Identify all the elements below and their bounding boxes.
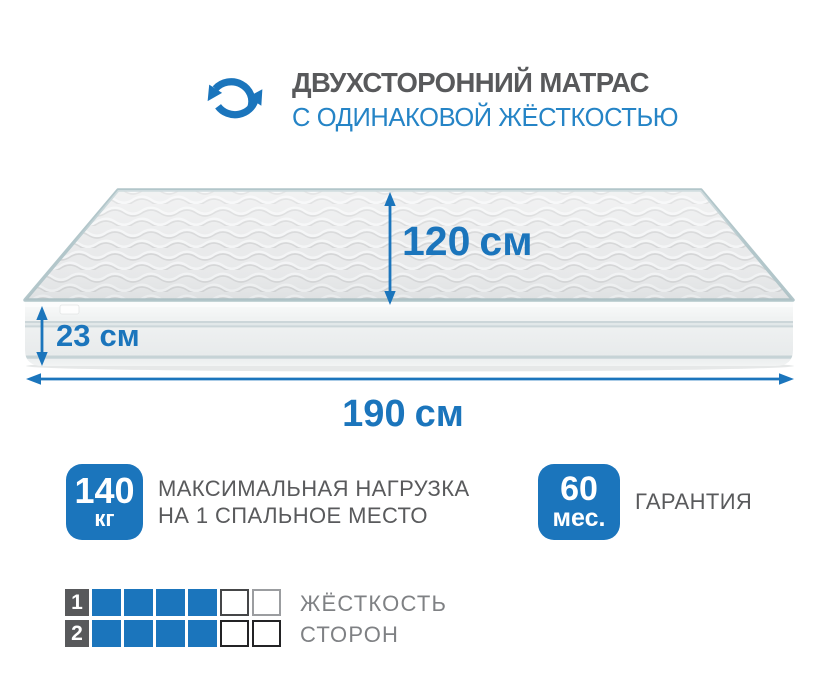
- firmness-cell-empty: [220, 620, 249, 647]
- warranty-unit: мес.: [553, 506, 606, 531]
- dimension-depth-unit: см: [479, 218, 532, 264]
- length-arrow: [26, 373, 794, 385]
- firmness-cell-filled: [92, 589, 121, 616]
- dimension-length-unit: см: [415, 393, 464, 435]
- warranty-feature: 60 мес. ГАРАНТИЯ: [538, 464, 752, 540]
- mattress-bottom-piping: [25, 356, 793, 359]
- firmness-cell-filled: [188, 620, 217, 647]
- firmness-side-number: 1: [65, 589, 89, 616]
- max-load-feature: 140 кг МАКСИМАЛЬНАЯ НАГРУЗКА НА 1 СПАЛЬН…: [66, 464, 470, 540]
- firmness-label: ЖЁСТКОСТЬ СТОРОН: [300, 588, 447, 650]
- firmness-row-side1: 1: [65, 589, 281, 616]
- warranty-badge: 60 мес.: [538, 464, 620, 540]
- firmness-cells-side2: [89, 620, 281, 647]
- max-load-unit: кг: [94, 508, 114, 530]
- max-load-value: 140: [74, 474, 134, 508]
- dimension-height-unit: см: [99, 318, 139, 353]
- firmness-cells-side1: [89, 589, 281, 616]
- dimension-length: 190см: [283, 395, 523, 433]
- firmness-cell-filled: [124, 620, 153, 647]
- firmness-cell-filled: [156, 589, 185, 616]
- firmness-cell-empty: [252, 589, 281, 616]
- dimension-depth-value: 120: [402, 218, 470, 264]
- page-title: ДВУХСТОРОННИЙ МАТРАС: [292, 69, 678, 97]
- warranty-label: ГАРАНТИЯ: [635, 488, 752, 516]
- dimension-height-value: 23: [56, 318, 90, 353]
- dimension-depth: 120см: [402, 221, 533, 262]
- firmness-cell-filled: [92, 620, 121, 647]
- firmness-cell-filled: [124, 589, 153, 616]
- dimension-height: 23см: [56, 320, 140, 351]
- rotate-sync-icon: [204, 64, 266, 128]
- firmness-row-side2: 2: [65, 620, 281, 647]
- mattress-illustration: [0, 160, 816, 400]
- firmness-rating: 1 2 ЖЁСТКОСТЬ СТОРОН: [65, 589, 281, 647]
- warranty-value: 60: [560, 473, 598, 505]
- firmness-cell-empty: [220, 589, 249, 616]
- header: ДВУХСТОРОННИЙ МАТРАС С ОДИНАКОВОЙ ЖЁСТКО…: [204, 64, 678, 131]
- mattress-label-tag: [60, 305, 79, 314]
- header-text: ДВУХСТОРОННИЙ МАТРАС С ОДИНАКОВОЙ ЖЁСТКО…: [292, 64, 678, 131]
- firmness-cell-empty: [252, 620, 281, 647]
- page-subtitle: С ОДИНАКОВОЙ ЖЁСТКОСТЬЮ: [292, 106, 678, 132]
- firmness-cell-filled: [188, 589, 217, 616]
- max-load-label: МАКСИМАЛЬНАЯ НАГРУЗКА НА 1 СПАЛЬНОЕ МЕСТ…: [158, 475, 470, 530]
- firmness-side-number: 2: [65, 620, 89, 647]
- dimension-length-value: 190: [342, 393, 405, 435]
- max-load-badge: 140 кг: [66, 464, 143, 540]
- firmness-cell-filled: [156, 620, 185, 647]
- mattress-infographic: ДВУХСТОРОННИЙ МАТРАС С ОДИНАКОВОЙ ЖЁСТКО…: [0, 0, 816, 700]
